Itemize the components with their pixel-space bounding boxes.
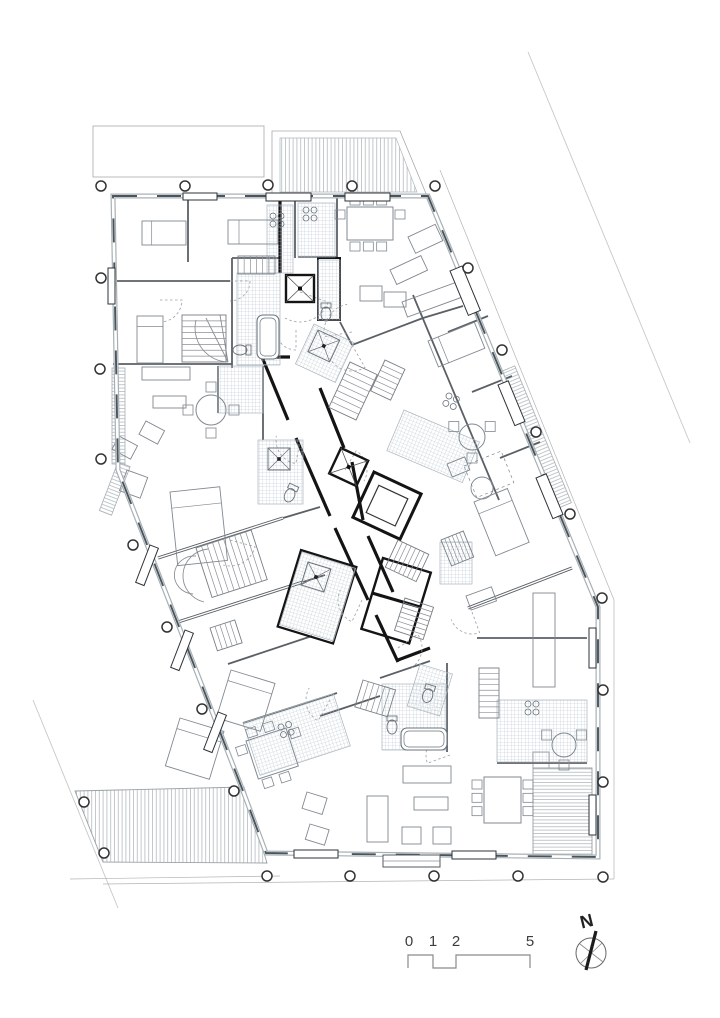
tiled-floor [218,366,263,413]
interior-walls [113,196,587,763]
column-marker [597,593,607,603]
elevator [329,448,368,486]
north-label: N [578,910,595,933]
seating-furniture [139,421,165,444]
column-marker [128,540,138,550]
window-frame [452,851,496,859]
stair-shaft [353,472,421,539]
window-frame [294,850,338,858]
column-marker [598,872,608,882]
column-marker [598,685,608,695]
column-marker [513,871,523,881]
scale-label: 2 [452,933,460,950]
window-frame [183,193,217,200]
seating-furniture [153,396,186,408]
column-marker [565,509,575,519]
tiled-floor [243,694,350,776]
seating-furniture [402,282,462,317]
column-marker [429,871,439,881]
window-frame [589,628,596,668]
window-frame [345,193,390,201]
north-arrow: N [576,910,606,970]
window-frame [108,268,115,304]
seating-furniture [433,827,451,844]
column-marker [96,181,106,191]
floor-plan-page: 0125 N [0,0,720,1018]
tiled-floor [258,440,303,504]
bed [170,487,227,566]
seating-furniture [367,796,388,842]
roof-outline-top-left [93,126,264,177]
seating-furniture [408,224,443,253]
scale-bar-outline [408,955,530,968]
column-markers [79,180,608,882]
seating-furniture [402,827,421,844]
column-marker [531,427,541,437]
column-marker [79,797,89,807]
seating-furniture [360,286,382,301]
dining-table [472,777,533,823]
column-marker [262,871,272,881]
stair-flight [371,360,405,400]
column-marker [162,622,172,632]
stair-flight [210,620,242,651]
elevator [286,275,314,302]
column-marker [263,180,273,190]
column-marker [95,364,105,374]
seating-furniture [302,792,327,814]
seating-furniture [533,593,555,687]
column-marker [598,777,608,787]
seating-furniture [305,824,329,845]
deck-bottom-right [533,768,592,856]
bed [137,316,163,363]
scale-label: 0 [405,933,413,950]
scale-bar: 0125 [405,933,534,968]
column-marker [463,263,473,273]
dining-table [335,196,405,251]
floor-plan-drawing: 0125 N [0,0,720,1018]
column-marker [197,704,207,714]
scale-label: 5 [526,933,534,950]
scale-label: 1 [429,933,437,950]
column-marker [96,273,106,283]
stair-elevator-core [182,256,499,718]
door-swing-arc [451,612,479,634]
column-marker [345,871,355,881]
column-marker [229,786,239,796]
column-marker [497,345,507,355]
seating-furniture [390,256,428,285]
column-marker [99,848,109,858]
tiled-floor [267,205,293,273]
seating-furniture [414,797,448,810]
column-marker [347,181,357,191]
column-marker [96,454,106,464]
window-frame [266,193,311,201]
column-marker [430,181,440,191]
seating-furniture [403,766,451,783]
column-marker [180,181,190,191]
seating-furniture [142,367,190,380]
stair-flight [479,668,499,718]
window-frame [589,795,596,835]
bed [142,221,186,245]
stair-flight [182,315,226,362]
